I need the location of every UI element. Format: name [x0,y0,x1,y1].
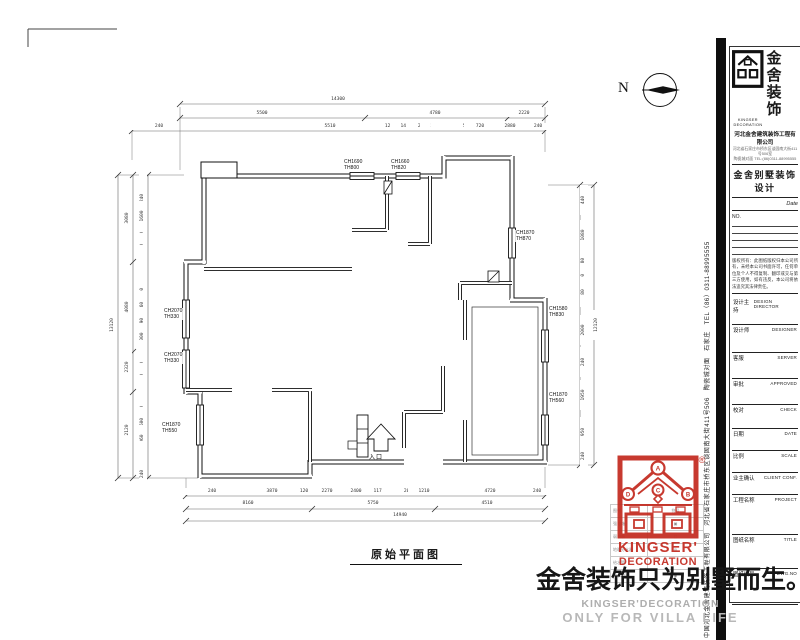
dim-value: 240 [522,123,554,130]
dim-value: 240 [143,123,175,130]
blank-line [732,248,798,255]
window-label: CH1870 TH550 [161,422,181,434]
window-label: CH1870 TH560 [548,392,568,404]
entrance-arrow-icon [367,424,395,451]
titleblock-row: 校对CHECK [732,405,798,429]
dim-value: 1210 [408,488,440,495]
interior-walls [186,176,512,462]
title-block: 金舍 装饰 KINGSER DECORATION 河北金舍建筑装饰工程有限公司 … [729,46,800,603]
dim-value: 2120 [124,415,132,445]
titleblock-row: 比例SCALE [732,451,798,473]
brand-cn-bottom: 装饰 [767,84,799,118]
dim-value: 240 [580,347,588,377]
dim-value: 14300 [322,96,354,103]
watermark-brand-2: DECORATION [619,556,697,568]
window-symbols [183,173,549,446]
titleblock-row: 设计师DESIGNER [732,325,798,353]
dim-value: 2000 [580,315,588,345]
logo-circle-a: A [656,466,661,473]
dim-value: 4510 [471,500,503,507]
row-label-en: TITLE [784,537,797,542]
blank-line [732,227,798,234]
dim-value: 240 [139,459,147,489]
row-label-cn: 审批 [733,380,744,388]
company-address-1: 河北省石家庄市桥东区谈固南大街411号506室 [732,146,798,156]
dim-value: 240 [521,488,553,495]
dim-value: 3080 [124,203,132,233]
shaft [348,415,368,457]
drawing-sheet: N 原始平面图 入口 中国河北金舍建筑装饰工程有限公司 河北省石家庄市桥东区谈固… [0,0,800,640]
row-label-en: SCALE [781,453,797,458]
titleblock-subtitle: 金舍别墅装饰设计 [732,168,798,194]
dim-value: 440 [580,185,588,215]
dim-value: 4780 [419,110,451,117]
titleblock-row: 业主确认CLIENT CONF. [732,473,798,495]
kingser-logo-icon [732,50,764,88]
copyright-notice: 版权所有：此图纸版权归本公司所有，未经本公司书面许可，任何单位及个人不得复制、翻… [732,258,798,290]
logo-circle-b: B [686,493,691,499]
dim-value: 240 [580,441,588,471]
dim-value: 5500 [246,110,278,117]
row-label-en: PROJECT [775,497,797,502]
dim-value: 240 [196,488,228,495]
date-label: Date [732,201,798,207]
plan-title: 原始平面图 [350,546,462,565]
watermark-brand-1: KINGSER' [618,539,698,556]
logo-circle-d: D [626,493,631,499]
divider [732,164,798,165]
dim-value: 2220 [508,110,540,117]
row-label-cn: 图纸名称 [733,536,755,544]
titleblock-row: 审批APPROVED [732,379,798,405]
row-label-cn: 比例 [733,452,744,460]
row-label-en: CLIENT CONF. [764,475,797,480]
dim-value: 1950 [580,380,588,410]
dim-value: 2320 [124,352,132,382]
dim-value: 1080 [580,220,588,250]
blank-line [732,234,798,241]
brand-cn-top: 金舍 [767,50,799,84]
row-label-cn: 客服 [733,354,744,362]
blank-line [732,220,798,227]
logo-circle-c: C [656,489,661,495]
window-label: CH2070 TH330 [163,352,183,364]
window-label: CH1580 TH830 [548,306,568,318]
registered-mark: ® [699,455,706,465]
window-label: CH2070 TH330 [163,308,183,320]
dim-value: 720 [464,123,496,130]
row-label-cn: 校对 [733,406,744,414]
row-label-cn: 工程名称 [733,496,755,504]
door-symbol [384,181,499,282]
company-name: 河北金舍建筑装饰工程有限公司 [732,130,798,146]
row-label-en: DESIGNER [772,327,797,332]
titleblock-row: 工程名称PROJECT [732,495,798,535]
dim-value: 14940 [384,512,416,519]
dim-value: 4080 [124,292,132,322]
brand-cn: 金舍 装饰 [767,50,799,118]
wall-pier [201,162,237,178]
row-label-en: DATE [785,431,797,436]
dim-value: 3870 [256,488,288,495]
divider [732,197,798,198]
company-address-2: 陶瓷城对面 TEL:(86)0311-88995555 [732,156,798,161]
entrance-label: 入口 [369,452,383,461]
divider [732,293,798,294]
divider [732,210,798,211]
dim-value: 80 [580,277,588,307]
titleblock-logo-row: 金舍 装饰 [732,50,798,118]
window-label: CH1870 TH870 [515,230,535,242]
dim-value: 5750 [357,500,389,507]
window-label: CH1690 TH800 [343,159,363,171]
kingser-watermark-logo: A D B C ® KINGSER' DECORATION [606,446,710,570]
footer-english: KINGSER'DECORATION ONLY FOR VILLA LIFE [548,598,753,625]
row-label-en: SERVER [777,355,797,360]
dim-value: 13120 [109,310,117,340]
blank-line [732,241,798,248]
titleblock-row: 设计主持DESIGN DIRECTOR [732,297,798,325]
dim-value: 12120 [593,310,601,340]
titleblock-row: 客服SERVER [732,353,798,379]
row-label-cn: 设计主持 [733,298,754,314]
titleblock-row: 日期DATE [732,429,798,451]
row-label-cn: 设计师 [733,326,749,334]
window-label: CH1660 TH820 [390,159,410,171]
titleblock-rows: 设计主持DESIGN DIRECTOR设计师DESIGNER客服SERVER审批… [732,297,798,605]
sheet-corner-mark [28,29,117,47]
row-label-en: APPROVED [770,381,797,386]
row-label-en: DESIGN DIRECTOR [754,299,797,309]
row-label-cn: 日期 [733,430,744,438]
dim-value: 5510 [314,123,346,130]
row-label-cn: 业主确认 [733,474,755,482]
north-label: N [618,80,629,97]
dim-value: 4720 [474,488,506,495]
footer-en-line2: ONLY FOR VILLA LIFE [548,610,753,625]
row-label-en: CHECK [780,407,797,412]
balcony-inner-line [472,307,538,455]
dim-value: 2270 [311,488,343,495]
brand-en-line2: DECORATION [732,123,764,128]
dim-value: 8160 [232,500,264,507]
north-arrow-icon [642,74,680,107]
divider-bar [716,38,726,640]
footer-en-line1: KINGSER'DECORATION [548,598,753,610]
